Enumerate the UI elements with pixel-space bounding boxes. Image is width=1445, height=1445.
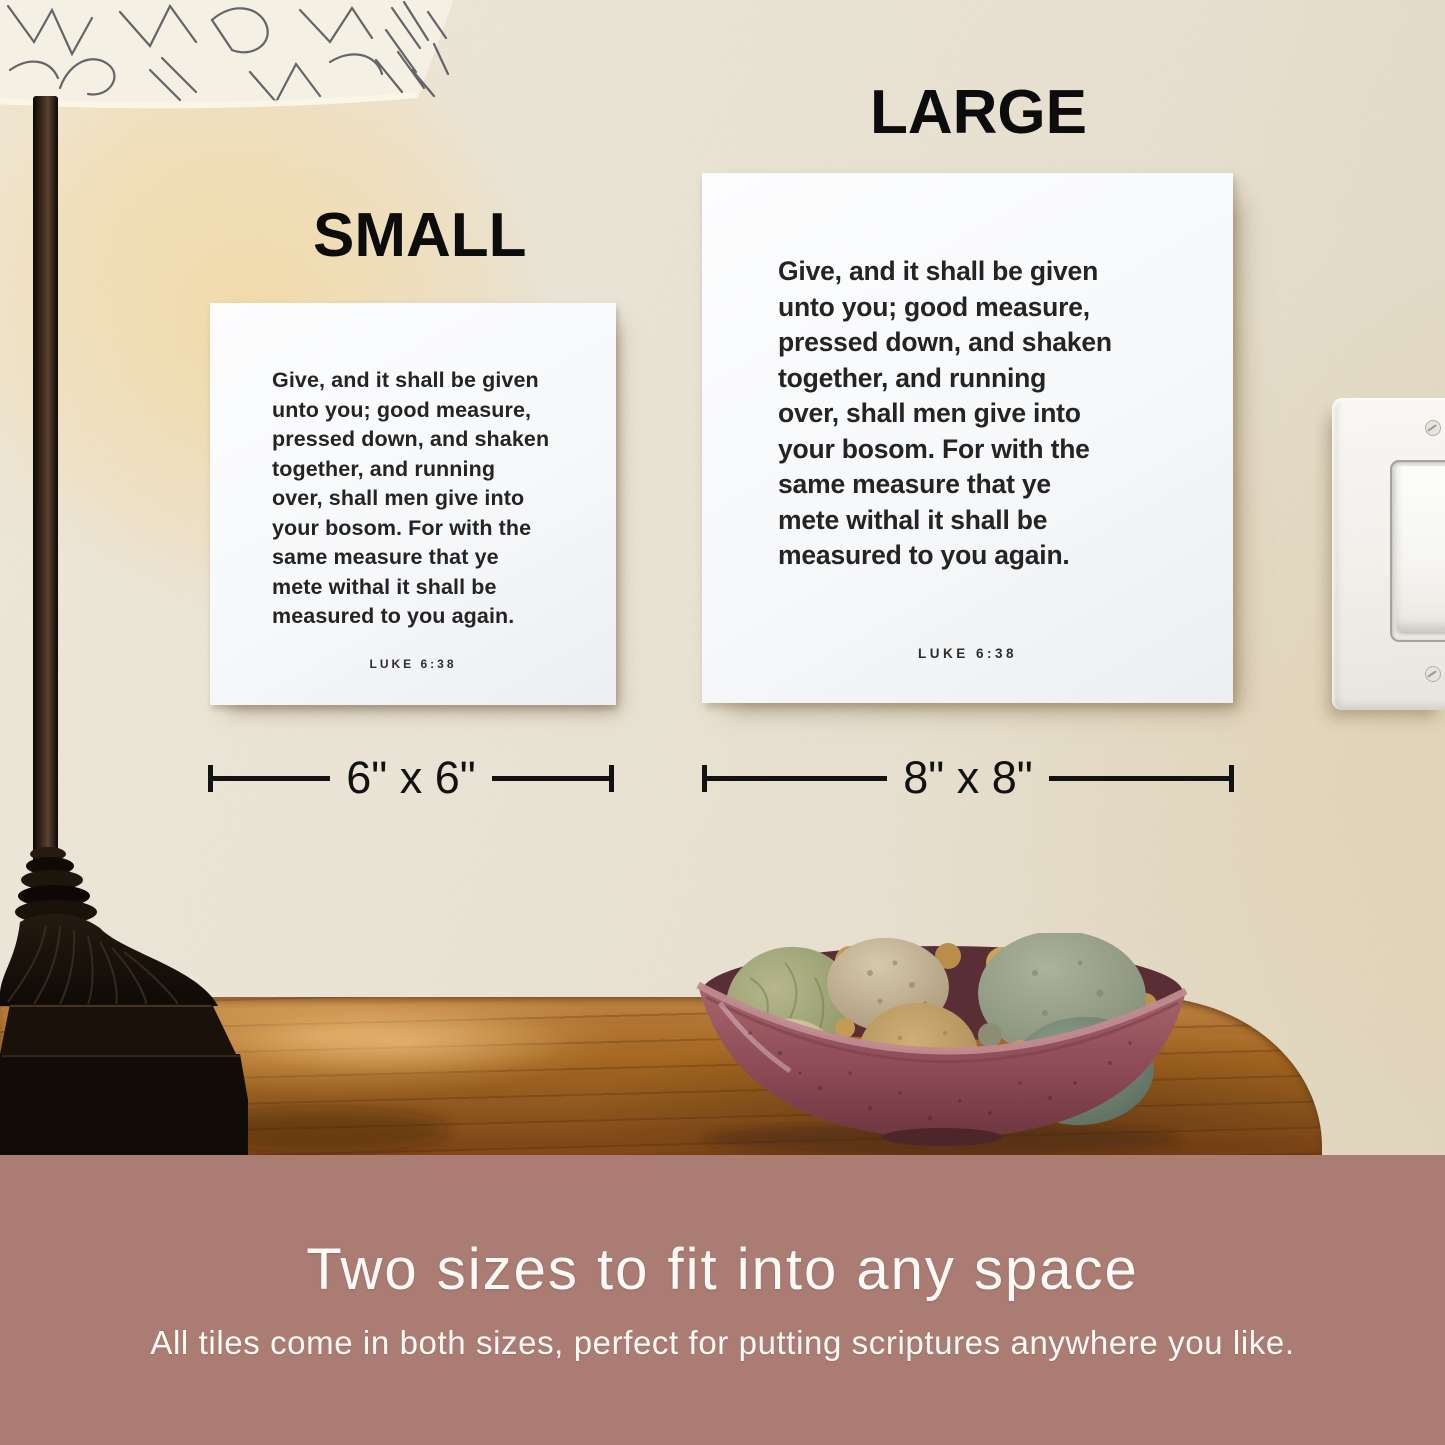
scripture-line: same measure that ye [778,467,1233,503]
scripture-reference: LUKE 6:38 [210,657,616,671]
scripture-line: together, and running [272,455,616,485]
scripture-line: Give, and it shall be given [778,254,1233,290]
dimension-tick [1229,765,1234,792]
light-switch [1332,398,1445,710]
scripture-line: pressed down, and shaken [272,425,616,455]
banner-heading: Two sizes to fit into any space [0,1238,1445,1302]
dimension-text-large: 8" x 8" [887,752,1049,804]
scripture-line: measured to you again. [272,602,616,632]
scripture-line: mete withal it shall be [778,503,1233,539]
scripture-text: Give, and it shall be givenunto you; goo… [702,173,1233,574]
scripture-line: Give, and it shall be given [272,366,616,396]
dimension-annotation-small: 6" x 6" [208,752,614,804]
scripture-line: your bosom. For with the [778,432,1233,468]
caption-banner: Two sizes to fit into any space All tile… [0,1155,1445,1445]
dimension-text-small: 6" x 6" [330,752,492,804]
scripture-line: unto you; good measure, [778,290,1233,326]
wood-table [0,997,1322,1155]
leaf-pattern [8,2,448,102]
scripture-text: Give, and it shall be givenunto you; goo… [210,303,616,632]
switch-rocker-frame [1390,460,1445,642]
scripture-tile-large: Give, and it shall be givenunto you; goo… [702,173,1233,703]
dimension-line [492,776,609,781]
size-label-small: SMALL [313,200,527,271]
dimension-line [213,776,330,781]
scripture-line: measured to you again. [778,538,1233,574]
switch-screw [1425,420,1441,436]
scripture-line: together, and running [778,361,1233,397]
scripture-line: mete withal it shall be [272,573,616,603]
scripture-line: your bosom. For with the [272,514,616,544]
product-photo: SMALL LARGE Give, and it shall be givenu… [0,0,1445,1155]
dimension-line [707,776,887,781]
scripture-line: unto you; good measure, [272,396,616,426]
patterned-lampshade [0,0,456,108]
scripture-line: pressed down, and shaken [778,325,1233,361]
scripture-line: over, shall men give into [272,484,616,514]
lamp-pole [33,96,58,862]
switch-screw [1425,666,1441,682]
scripture-tile-small: Give, and it shall be givenunto you; goo… [210,303,616,705]
dimension-annotation-large: 8" x 8" [702,752,1234,804]
dimension-line [1049,776,1229,781]
size-label-large: LARGE [870,77,1087,148]
dimension-tick [609,765,614,792]
scripture-line: same measure that ye [272,543,616,573]
scripture-reference: LUKE 6:38 [702,646,1233,661]
scripture-line: over, shall men give into [778,396,1233,432]
switch-rocker [1396,466,1445,632]
banner-subheading: All tiles come in both sizes, perfect fo… [0,1324,1445,1362]
